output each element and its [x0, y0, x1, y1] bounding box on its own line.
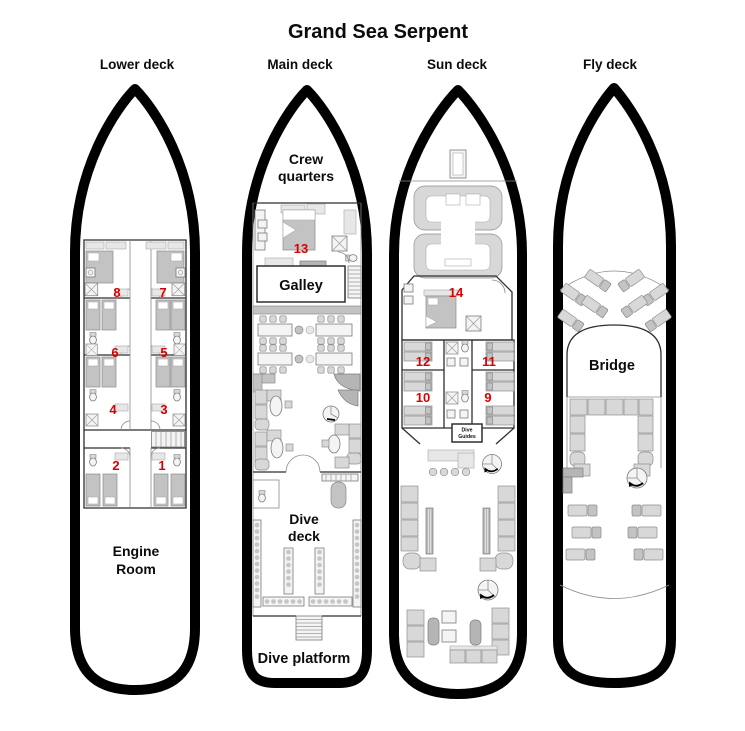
- sun-dive-guides: Dive Guides: [452, 424, 482, 442]
- fly-deck: Bridge: [557, 88, 671, 683]
- cabin-number-6: 6: [111, 345, 118, 360]
- deck-plan-page: Grand Sea Serpent Lower deck Main deck S…: [0, 0, 745, 731]
- sun-deck-label: Sun deck: [427, 57, 488, 72]
- crew-quarters-label-line2: quarters: [278, 168, 334, 184]
- main-staircase: [348, 266, 361, 298]
- fly-deck-label: Fly deck: [583, 57, 638, 72]
- sun-bow-seat: [450, 150, 466, 178]
- dive-guides-label-line2: Guides: [458, 434, 476, 440]
- engine-room-label-line1: Engine: [113, 543, 160, 559]
- bridge-label: Bridge: [589, 358, 635, 374]
- page-title: Grand Sea Serpent: [288, 21, 468, 43]
- dive-deck-label-line1: Dive: [289, 511, 319, 527]
- cabin-number-3: 3: [160, 402, 167, 417]
- sun-deck: 14 12 11 10 9 Dive Guides: [394, 90, 522, 694]
- dive-deck-label-line2: deck: [288, 528, 320, 544]
- main-deck: Crew quarters 13 Galley: [247, 90, 367, 683]
- cabin-number-11: 11: [482, 354, 496, 369]
- lower-deck-label: Lower deck: [100, 57, 175, 72]
- main-deck-label: Main deck: [267, 57, 333, 72]
- crew-quarters-label-line1: Crew: [289, 151, 323, 167]
- cabin-number-5: 5: [160, 345, 167, 360]
- cabin-number-10: 10: [416, 390, 430, 405]
- galley-label: Galley: [279, 278, 323, 294]
- deck-plan-diagram: Grand Sea Serpent Lower deck Main deck S…: [0, 0, 745, 731]
- cabin-number-13: 13: [294, 241, 308, 256]
- dive-guides-label-line1: Dive: [462, 428, 473, 434]
- cabin-number-1: 1: [158, 458, 165, 473]
- engine-room-label-line2: Room: [116, 561, 156, 577]
- fly-deck-hull: [558, 88, 671, 683]
- cabin-number-2: 2: [112, 458, 119, 473]
- cabin-number-14: 14: [449, 285, 464, 300]
- cabin-number-7: 7: [159, 285, 166, 300]
- cabin-number-8: 8: [113, 285, 120, 300]
- lower-deck: 8 7 6 5 4 3 2 1 Engine Room: [75, 89, 195, 690]
- cabin-number-12: 12: [416, 354, 430, 369]
- cabin-number-9: 9: [484, 390, 491, 405]
- dive-platform-label: Dive platform: [258, 651, 351, 667]
- cabin-number-4: 4: [109, 402, 117, 417]
